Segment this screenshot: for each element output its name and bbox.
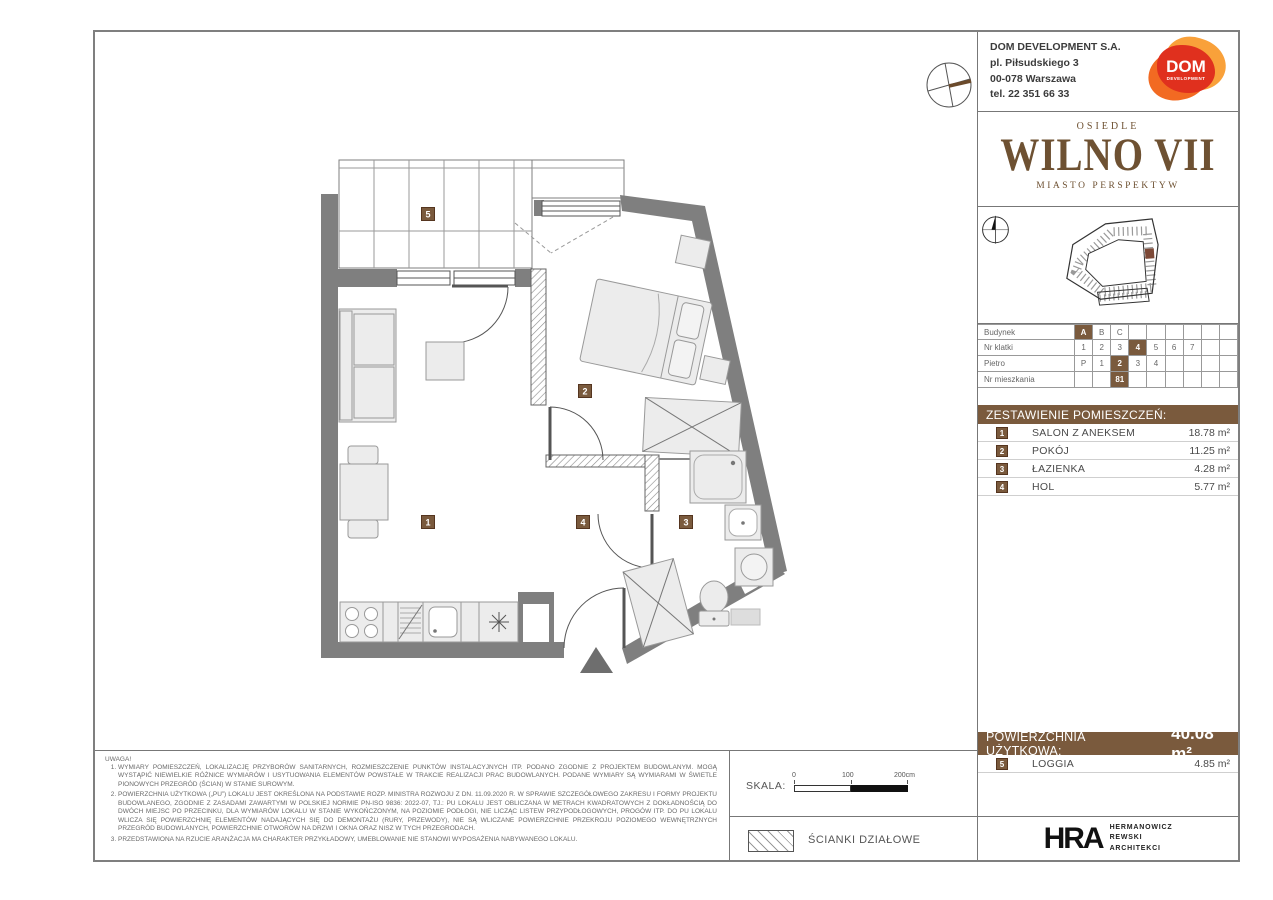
scale-block: SKALA: 0 100 200cm [729, 750, 977, 816]
svg-text:2: 2 [582, 387, 587, 397]
unit-selector-table: Budynek A B C Nr klatki 1 2 3 4 5 6 7 [978, 324, 1238, 388]
cell: B [1093, 324, 1111, 340]
company-block: DOM DEVELOPMENT S.A. pl. Piłsudskiego 3 … [978, 32, 1238, 112]
title-block: DOM DEVELOPMENT S.A. pl. Piłsudskiego 3 … [977, 32, 1238, 860]
cell [1220, 340, 1238, 356]
room-name: ŁAZIENKA [1032, 463, 1194, 475]
scale-tickmark [907, 780, 908, 784]
cell [1202, 356, 1220, 372]
room-area: 4.28 m² [1194, 463, 1230, 475]
room-area: 18.78 m² [1189, 427, 1230, 439]
cell [1075, 372, 1093, 388]
usable-area-label: POWIERZCHNIA UŻYTKOWA: [986, 730, 1161, 758]
cell: 5 [1147, 340, 1165, 356]
highlighted-unit [1145, 248, 1155, 259]
scale-label: SKALA: [746, 780, 786, 792]
svg-text:5: 5 [425, 210, 430, 220]
scale-bar: 0 100 200cm [794, 785, 908, 792]
scale-bar-black-segment [851, 785, 908, 792]
cell: 3 [1129, 356, 1147, 372]
table-row-budynek: Budynek A B C [978, 324, 1238, 340]
cell: A [1075, 324, 1093, 340]
loggia-row: 5 LOGGIA 4.85 m² [978, 755, 1238, 773]
washbasin [725, 505, 761, 540]
notes-block: UWAGA! WYMIARY POMIESZCZEŃ, LOKALIZACJĘ … [95, 750, 729, 862]
notes-title: UWAGA! [105, 756, 717, 763]
estate-tagline: MIASTO PERSPEKTYW [978, 181, 1238, 191]
dom-development-logo: DOM DEVELOPMENT [1148, 38, 1230, 104]
logo-word: DOM [1166, 58, 1206, 75]
row-label: Budynek [978, 324, 1075, 340]
cell [1220, 372, 1238, 388]
cell [1202, 372, 1220, 388]
scale-tick-200: 200cm [894, 772, 915, 779]
cell [1093, 372, 1111, 388]
partition-hatch-swatch [748, 830, 794, 852]
shower [690, 451, 746, 503]
cell: 81 [1111, 372, 1129, 388]
wall-niche [523, 604, 549, 642]
table-row-mieszkanie: Nr mieszkania 81 [978, 372, 1238, 388]
building-footprint [1067, 219, 1158, 305]
cell: 1 [1093, 356, 1111, 372]
scale-tick-100: 100 [842, 772, 854, 779]
svg-text:3: 3 [683, 518, 688, 528]
room-name: POKÓJ [1032, 445, 1189, 457]
cell [1147, 324, 1165, 340]
kitchen-counter [340, 602, 518, 642]
legend-block: ŚCIANKI DZIAŁOWE [729, 816, 977, 860]
cell [1166, 372, 1184, 388]
cell [1184, 372, 1202, 388]
table-row-klatka: Nr klatki 1 2 3 4 5 6 7 [978, 340, 1238, 356]
room-row-loggia: 5 LOGGIA 4.85 m² [978, 755, 1238, 773]
cell: 3 [1111, 340, 1129, 356]
sofa [339, 309, 396, 422]
badge-pokoj: 2 [579, 385, 592, 398]
nightstand [675, 235, 710, 269]
cell [1220, 356, 1238, 372]
scale-tickmark [851, 780, 852, 784]
note-item-3: PRZEDSTAWIONA NA RZUCIE ARANŻACJA MA CHA… [118, 836, 717, 844]
cell: 6 [1166, 340, 1184, 356]
sink [429, 607, 457, 637]
fridge-snowflake [489, 612, 509, 632]
cell: 1 [1075, 340, 1093, 356]
row-label: Nr mieszkania [978, 372, 1075, 388]
room-row-hol: 4 HOL 5.77 m² [978, 478, 1238, 496]
hra-logo: HRA [1044, 822, 1103, 856]
cell: 7 [1184, 340, 1202, 356]
cell [1147, 372, 1165, 388]
cell [1220, 324, 1238, 340]
row-label: Nr klatki [978, 340, 1075, 356]
scale-tickmark [794, 780, 795, 784]
dining-set [340, 446, 388, 538]
architect-name-3: ARCHITEKCI [1110, 844, 1173, 854]
cell [1184, 356, 1202, 372]
room-number-badge: 2 [996, 445, 1008, 457]
room-number-badge: 1 [996, 427, 1008, 439]
furniture [339, 235, 773, 647]
badge-lazienka: 3 [680, 516, 693, 529]
table-row-pietro: Pietro P 1 2 3 4 [978, 356, 1238, 372]
site-plan-map [978, 207, 1238, 323]
estate-name: WILNO VII [978, 129, 1238, 182]
cell [1202, 340, 1220, 356]
svg-text:1: 1 [425, 518, 430, 528]
wardrobe-hall [623, 559, 693, 648]
room-number-badge: 4 [996, 481, 1008, 493]
badge-loggia: 5 [422, 208, 435, 221]
compass-icon [927, 63, 971, 107]
architect-block: HRA HERMANOWICZ REWSKI ARCHITEKCI [978, 816, 1238, 860]
room-name: SALON Z ANEKSEM [1032, 427, 1189, 439]
room-row-salon: 1 SALON Z ANEKSEM 18.78 m² [978, 424, 1238, 442]
estate-brand-block: OSIEDLE WILNO VII MIASTO PERSPEKTYW [978, 112, 1238, 207]
architect-name-2: REWSKI [1110, 833, 1173, 843]
bed [580, 279, 713, 386]
room-row-pokoj: 2 POKÓJ 11.25 m² [978, 442, 1238, 460]
window-swing-dashed [515, 217, 613, 253]
svg-text:4: 4 [580, 518, 585, 528]
wardrobe-bedroom [643, 398, 742, 457]
cell: 4 [1129, 340, 1147, 356]
cell: 4 [1147, 356, 1165, 372]
site-plan-block [978, 207, 1238, 324]
scale-tick-0: 0 [792, 772, 796, 779]
room-row-lazienka: 3 ŁAZIENKA 4.28 m² [978, 460, 1238, 478]
room-name: HOL [1032, 481, 1194, 493]
cell [1184, 324, 1202, 340]
badge-salon: 1 [422, 516, 435, 529]
coffee-table [426, 342, 464, 380]
badge-hol: 4 [577, 516, 590, 529]
entrance-arrow [580, 647, 613, 673]
usable-area-band: POWIERZCHNIA UŻYTKOWA: 40.08 m² [978, 732, 1238, 755]
cell: C [1111, 324, 1129, 340]
row-label: Pietro [978, 356, 1075, 372]
cell [1166, 356, 1184, 372]
cell [1166, 324, 1184, 340]
cell: P [1075, 356, 1093, 372]
room-area: 4.85 m² [1194, 758, 1230, 770]
washing-machine [735, 548, 773, 586]
cell [1129, 372, 1147, 388]
cell: 2 [1093, 340, 1111, 356]
room-number-badge: 3 [996, 463, 1008, 475]
cell [1202, 324, 1220, 340]
room-area: 5.77 m² [1194, 481, 1230, 493]
legend-label: ŚCIANKI DZIAŁOWE [808, 834, 921, 846]
drawing-sheet-frame: 5 1 2 3 4 [93, 30, 1240, 862]
nightstand-2 [700, 356, 730, 385]
note-item-1: WYMIARY POMIESZCZEŃ, LOKALIZACJĘ PRZYBOR… [118, 764, 717, 789]
architect-name-1: HERMANOWICZ [1110, 823, 1173, 833]
room-number-badge: 5 [996, 758, 1008, 770]
cell [1129, 324, 1147, 340]
floor-plan: 5 1 2 3 4 [95, 32, 977, 750]
logo-subword: DEVELOPMENT [1167, 76, 1206, 81]
floor-plan-area: 5 1 2 3 4 [95, 32, 977, 750]
cell: 2 [1111, 356, 1129, 372]
room-list: 1 SALON Z ANEKSEM 18.78 m² 2 POKÓJ 11.25… [978, 424, 1238, 496]
stove-burner [346, 608, 359, 621]
room-area: 11.25 m² [1189, 445, 1230, 457]
room-name: LOGGIA [1032, 758, 1194, 770]
scale-bar-white-segment [794, 785, 851, 792]
room-list-header: ZESTAWIENIE POMIESZCZEŃ: [978, 405, 1238, 424]
note-item-2: POWIERZCHNIA UŻYTKOWA („PU”) LOKALU JEST… [118, 791, 717, 833]
north-compass-icon [983, 216, 1009, 244]
